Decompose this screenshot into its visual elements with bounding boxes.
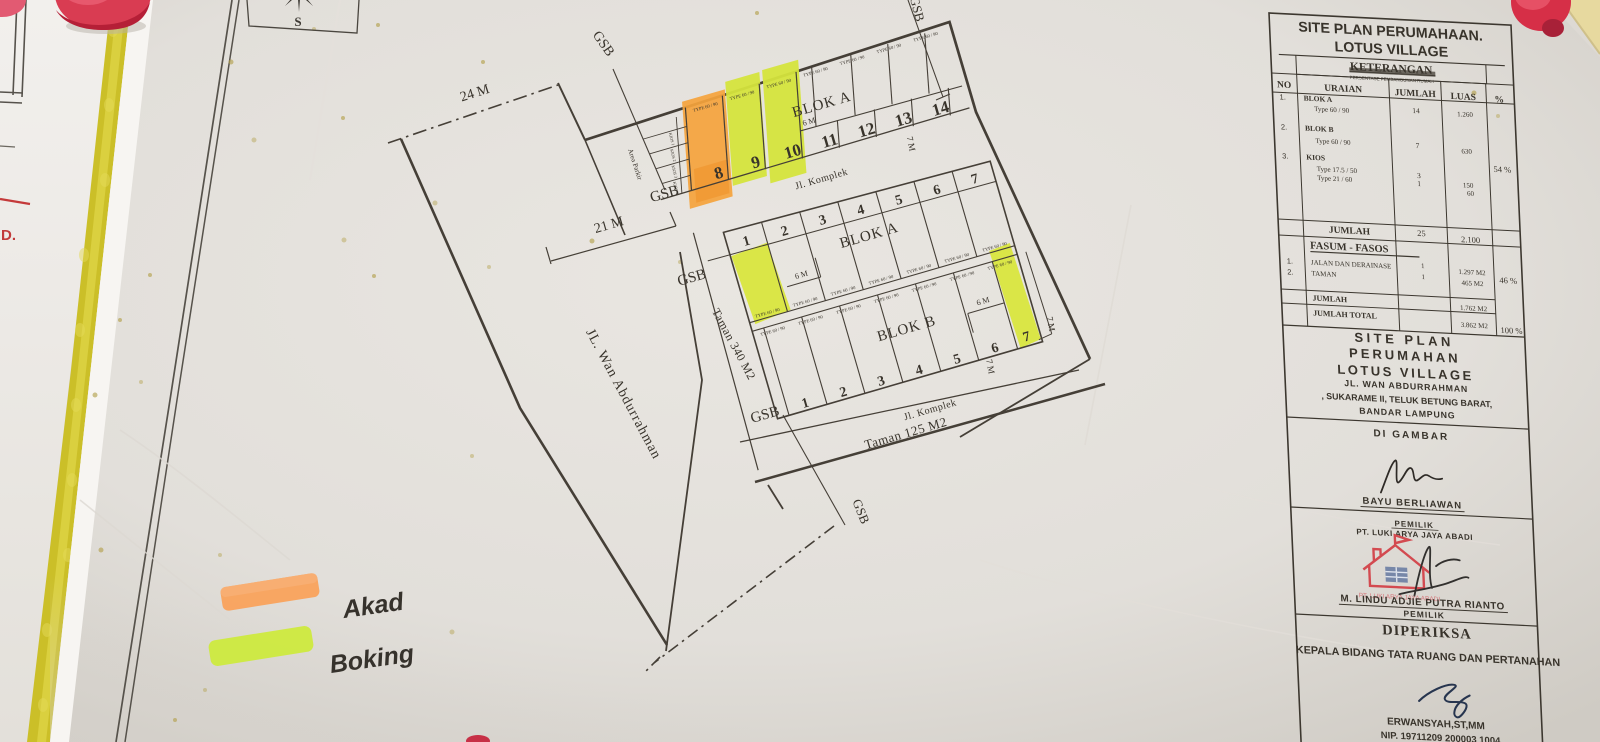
svg-text:JUMLAH: JUMLAH [1329, 226, 1371, 238]
svg-text:1.: 1. [1279, 92, 1286, 101]
svg-text:3.862 M2: 3.862 M2 [1461, 321, 1489, 330]
svg-text:TAMAN: TAMAN [1311, 270, 1336, 279]
svg-text:S: S [294, 14, 301, 29]
svg-text:PEMILIK: PEMILIK [1403, 608, 1445, 620]
svg-text:NO: NO [1277, 80, 1292, 91]
svg-text:1.297 M2: 1.297 M2 [1458, 268, 1486, 277]
svg-text:BLOK B: BLOK B [1305, 124, 1334, 134]
svg-text:100 %: 100 % [1500, 325, 1522, 336]
svg-text:2.: 2. [1287, 267, 1294, 276]
svg-text:LUAS: LUAS [1450, 92, 1476, 103]
svg-text:1: 1 [1417, 179, 1421, 188]
svg-text:60: 60 [1467, 190, 1475, 198]
svg-text:D.: D. [1, 227, 16, 244]
svg-text:2.100: 2.100 [1461, 234, 1481, 245]
svg-text:KIOS: KIOS [1306, 153, 1325, 163]
svg-text:JUMLAH: JUMLAH [1394, 88, 1436, 100]
svg-text:URAIAN: URAIAN [1324, 84, 1363, 96]
svg-text:BLOK A: BLOK A [1303, 94, 1332, 104]
svg-text:7: 7 [1415, 141, 1419, 150]
svg-text:54 %: 54 % [1493, 164, 1511, 175]
svg-text:465 M2: 465 M2 [1461, 279, 1484, 288]
svg-text:25: 25 [1417, 228, 1426, 238]
svg-text:1.: 1. [1287, 256, 1294, 265]
svg-text:%: % [1494, 95, 1504, 105]
svg-text:1.260: 1.260 [1457, 110, 1474, 119]
svg-text:3.: 3. [1282, 151, 1289, 160]
svg-text:46 %: 46 % [1499, 275, 1517, 286]
svg-text:1.762 M2: 1.762 M2 [1460, 304, 1488, 313]
svg-text:150: 150 [1463, 181, 1474, 190]
svg-text:630: 630 [1461, 147, 1472, 156]
svg-text:JUMLAH: JUMLAH [1312, 294, 1348, 305]
svg-text:2.: 2. [1281, 122, 1288, 131]
svg-text:14: 14 [1412, 106, 1420, 115]
